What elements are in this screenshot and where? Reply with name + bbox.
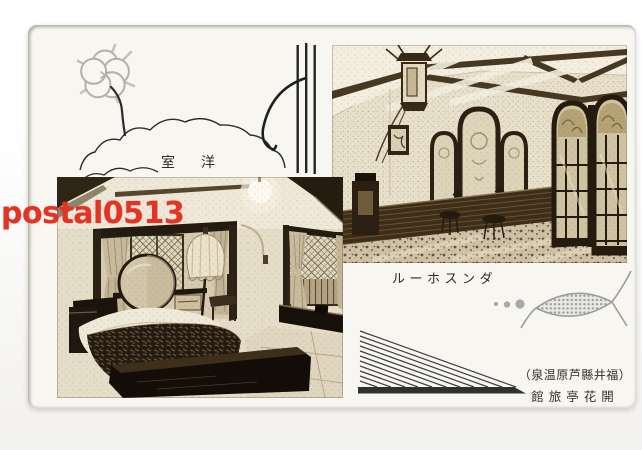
triple-lines-motif xyxy=(297,43,316,174)
hatch-lines-motif xyxy=(360,331,516,387)
inn-caption: （泉温原芦縣井福） 館旅亭花開 xyxy=(514,366,636,405)
arc-flourish xyxy=(263,78,306,149)
hall-label: ルーホスンダ xyxy=(392,268,497,287)
cloud-motif xyxy=(80,119,285,183)
dots-motif xyxy=(494,299,525,308)
fish-motif xyxy=(521,271,631,328)
flower-motif xyxy=(78,45,134,135)
dance-hall-photo xyxy=(332,45,627,263)
inn-name-line: 館旅亭花開 xyxy=(514,386,636,405)
watermark-text: postal0513 xyxy=(1,196,184,231)
inn-location-line: （泉温原芦縣井福） xyxy=(514,366,636,383)
dance-hall-illustration xyxy=(332,45,627,263)
speed-bar-motif xyxy=(358,387,526,394)
room-label: 室洋 xyxy=(161,152,241,172)
scan-background: 室洋 ルーホスンダ （泉温原芦縣井福） 館旅亭花開 postal0513 xyxy=(0,0,642,450)
